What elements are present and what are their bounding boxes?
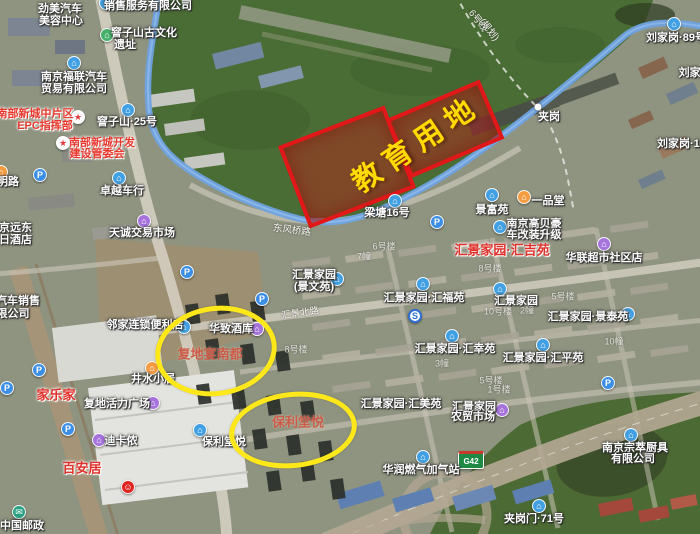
poi-label-red[interactable]: EPC指挥部 <box>17 117 73 133</box>
building-number-label: 10号楼 <box>484 305 512 318</box>
poi-label[interactable]: 迪卡侬 <box>105 432 138 448</box>
highlight-label-baianju[interactable]: 百安居 <box>62 458 101 477</box>
poi-label[interactable]: 明路 <box>0 173 19 189</box>
government-star-icon[interactable]: ★ <box>56 136 70 150</box>
poi-label[interactable]: 限公司 <box>0 305 30 321</box>
kfc-icon[interactable]: ☺ <box>121 480 135 494</box>
car-dealer-icon[interactable]: ⌂ <box>493 220 507 234</box>
poi-label[interactable]: 天诚交易市场 <box>109 224 175 240</box>
parking-icon[interactable]: P <box>61 422 75 436</box>
parking-icon[interactable]: P <box>33 168 47 182</box>
satellite-map-canvas[interactable]: 教育用地 复地宴南都 保利堂悦 G42 销售服务有限公司劲美汽车美容中心窨子山古… <box>0 0 700 534</box>
poi-label[interactable]: (景文苑) <box>294 278 334 294</box>
building-number-label: 8号楼 <box>478 262 501 275</box>
building-number-label: 3幢 <box>435 357 449 370</box>
expressway-shield-g42: G42 <box>458 451 484 469</box>
restaurant-icon[interactable]: ⌂ <box>517 190 531 204</box>
poi-label[interactable]: 假日酒店 <box>0 231 32 247</box>
poi-label[interactable]: 遗址 <box>114 36 136 52</box>
metro-station-icon[interactable]: S <box>408 309 422 323</box>
poi-label[interactable]: 汇景家园·汇福苑 <box>384 289 465 305</box>
parking-icon[interactable]: P <box>430 215 444 229</box>
residence-icon[interactable]: ⌂ <box>485 188 499 202</box>
poi-label[interactable]: 刘家岗·89号 <box>646 29 700 45</box>
poi-label[interactable]: 汇景家园·景泰苑 <box>548 308 629 324</box>
parking-icon[interactable]: P <box>255 292 269 306</box>
poi-label[interactable]: 一品堂 <box>532 192 565 208</box>
poi-label[interactable]: 汇景家园·汇美苑 <box>361 395 442 411</box>
parking-icon[interactable]: P <box>180 265 194 279</box>
poi-label-red[interactable]: 建设管委会 <box>70 145 125 161</box>
annotation-baoli-tangyue: 保利堂悦 <box>272 412 324 431</box>
building-number-label: 6号楼 <box>372 240 395 253</box>
poi-label[interactable]: 景富苑 <box>476 201 509 217</box>
market-icon[interactable]: ⌂ <box>495 403 509 417</box>
poi-label[interactable]: 销售服务有限公司 <box>104 0 192 13</box>
poi-label[interactable]: 梁塘16号 <box>364 204 409 220</box>
poi-label[interactable]: 刘家岗· <box>679 64 700 80</box>
poi-label[interactable]: 华润燃气加气站 <box>383 461 460 477</box>
building-number-label: 1号楼 <box>487 383 510 396</box>
poi-label[interactable]: 汇景家园·汇幸苑 <box>415 340 496 356</box>
building-number-label: 10幢 <box>604 335 623 348</box>
building-number-label: 8号楼 <box>284 343 307 356</box>
poi-label[interactable]: 卓越车行 <box>100 182 144 198</box>
annotation-fudi-yannandu: 复地宴南都 <box>177 344 242 363</box>
poi-label[interactable]: 美容中心 <box>39 12 83 28</box>
parking-icon[interactable]: P <box>32 363 46 377</box>
poi-label[interactable]: 农贸市场 <box>451 408 495 424</box>
highlight-label-huijiyuan[interactable]: 汇景家园·汇吉苑 <box>454 240 549 259</box>
poi-label[interactable]: 汇景家园·汇平苑 <box>503 349 584 365</box>
poi-label[interactable]: 贸易有限公司 <box>41 80 107 96</box>
poi-label[interactable]: 夹岗门·71号 <box>504 510 564 526</box>
highlight-label-jialejia[interactable]: 家乐家 <box>36 385 75 404</box>
building-number-label: 5号楼 <box>551 290 574 303</box>
building-number-label: 2幢 <box>520 304 534 317</box>
poi-label[interactable]: 夹岗 <box>538 108 560 124</box>
poi-label[interactable]: 有限公司 <box>611 450 655 466</box>
poi-label[interactable]: 华联超市社区店 <box>566 249 643 265</box>
poi-label[interactable]: 复地活力广场 <box>84 395 150 411</box>
poi-label[interactable]: 刘家岗·124号 <box>657 135 700 151</box>
building-number-label: 7幢 <box>357 250 371 263</box>
poi-label[interactable]: 窨子山·25号 <box>97 113 157 129</box>
parking-icon[interactable]: P <box>0 381 14 395</box>
parking-icon[interactable]: P <box>601 376 615 390</box>
poi-label[interactable]: 中国邮政 <box>0 517 44 533</box>
